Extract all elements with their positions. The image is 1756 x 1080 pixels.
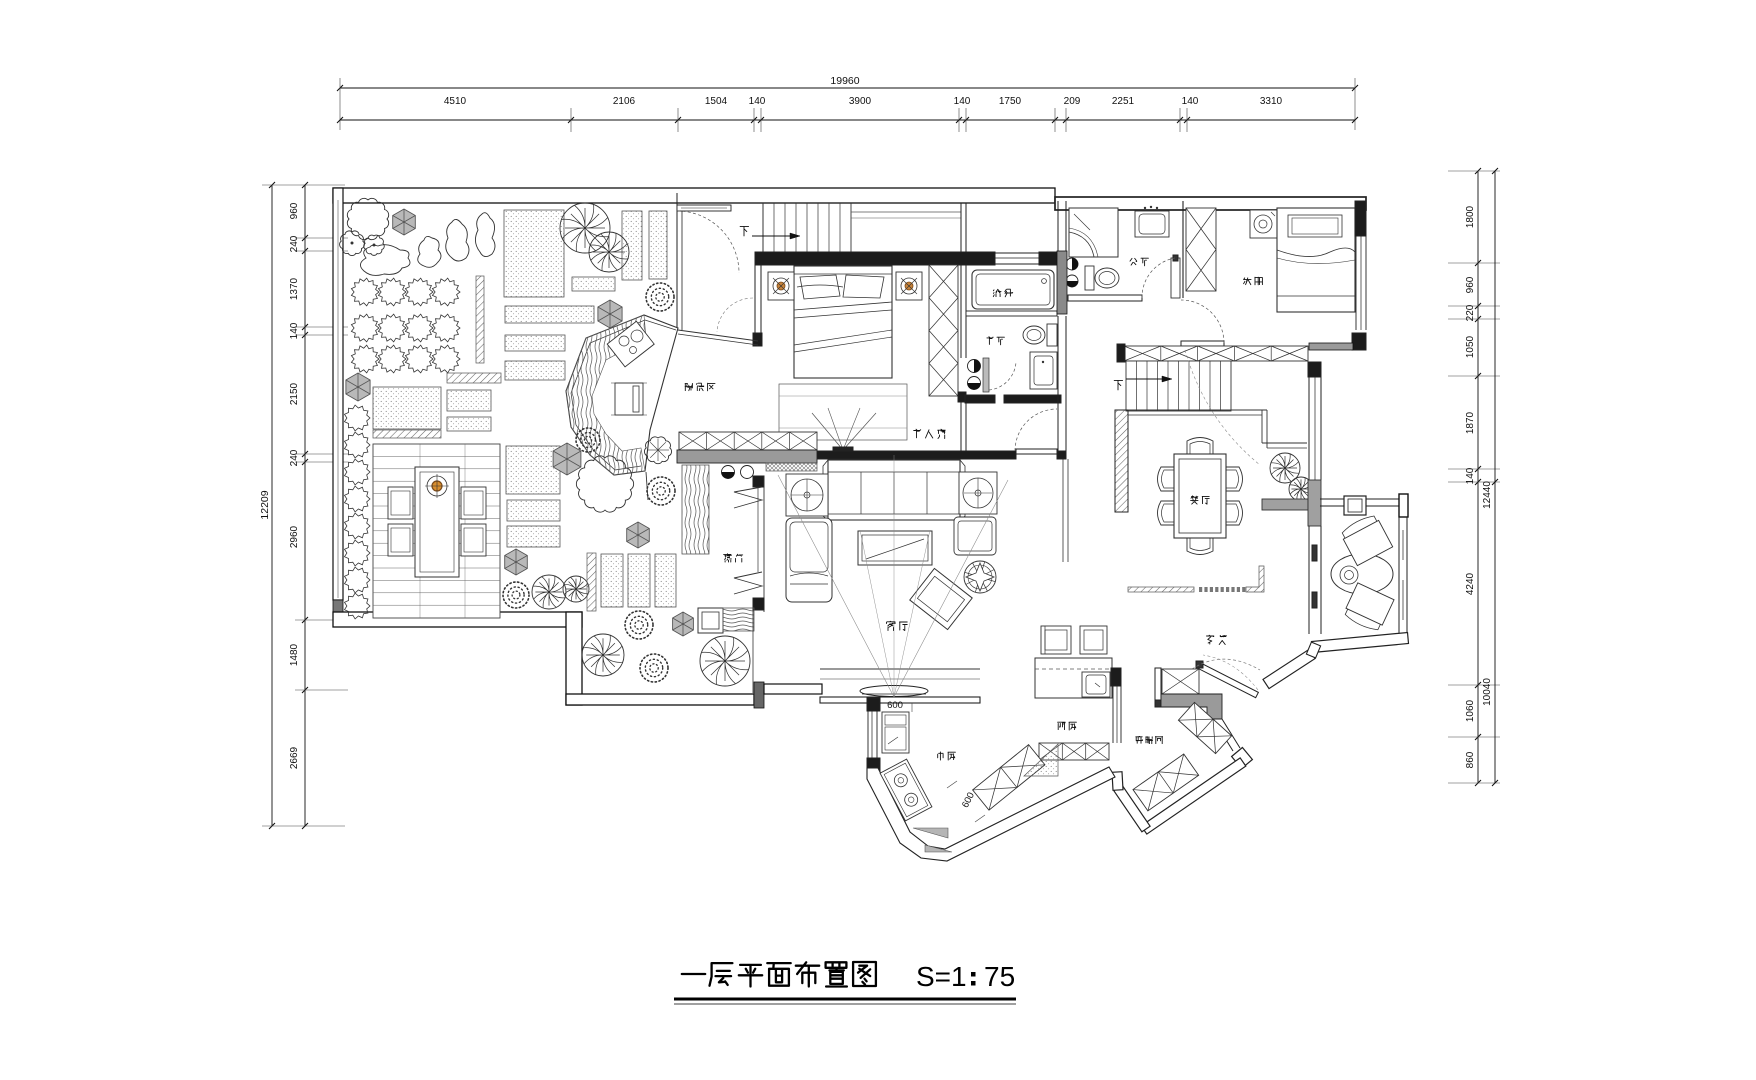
svg-text:1370: 1370 — [289, 277, 300, 300]
svg-text:140: 140 — [954, 96, 971, 107]
svg-text:3310: 3310 — [1260, 96, 1283, 107]
svg-text:1800: 1800 — [1465, 205, 1476, 228]
svg-text:140: 140 — [289, 322, 300, 339]
svg-text:2960: 2960 — [289, 525, 300, 548]
svg-text:12440: 12440 — [1482, 481, 1493, 509]
svg-text:4240: 4240 — [1465, 572, 1476, 595]
svg-text:1750: 1750 — [999, 96, 1022, 107]
svg-text:209: 209 — [1064, 96, 1081, 107]
svg-text:1480: 1480 — [289, 643, 300, 666]
svg-text:220: 220 — [1465, 304, 1476, 321]
svg-text:140: 140 — [1465, 467, 1476, 484]
svg-text:10040: 10040 — [1482, 678, 1493, 706]
svg-text:1504: 1504 — [705, 96, 728, 107]
svg-text:12209: 12209 — [259, 490, 271, 519]
svg-text:1050: 1050 — [1465, 335, 1476, 358]
svg-text:860: 860 — [1465, 751, 1476, 768]
svg-text:2106: 2106 — [613, 96, 636, 107]
svg-text:240: 240 — [289, 235, 300, 252]
svg-text:960: 960 — [1465, 276, 1476, 293]
svg-text:600: 600 — [887, 700, 903, 711]
svg-text:2251: 2251 — [1112, 96, 1135, 107]
svg-text:19960: 19960 — [830, 75, 859, 87]
svg-text:2669: 2669 — [289, 746, 300, 769]
svg-text:2150: 2150 — [289, 382, 300, 405]
svg-text:140: 140 — [749, 96, 766, 107]
svg-text:3900: 3900 — [849, 96, 872, 107]
svg-text:1060: 1060 — [1465, 699, 1476, 722]
svg-text:960: 960 — [289, 202, 300, 219]
svg-text:140: 140 — [1182, 96, 1199, 107]
svg-text:S=1: S=1 — [916, 961, 967, 992]
svg-text:4510: 4510 — [444, 96, 467, 107]
svg-text:75: 75 — [984, 961, 1015, 992]
svg-text:240: 240 — [289, 449, 300, 466]
svg-text:1870: 1870 — [1465, 411, 1476, 434]
